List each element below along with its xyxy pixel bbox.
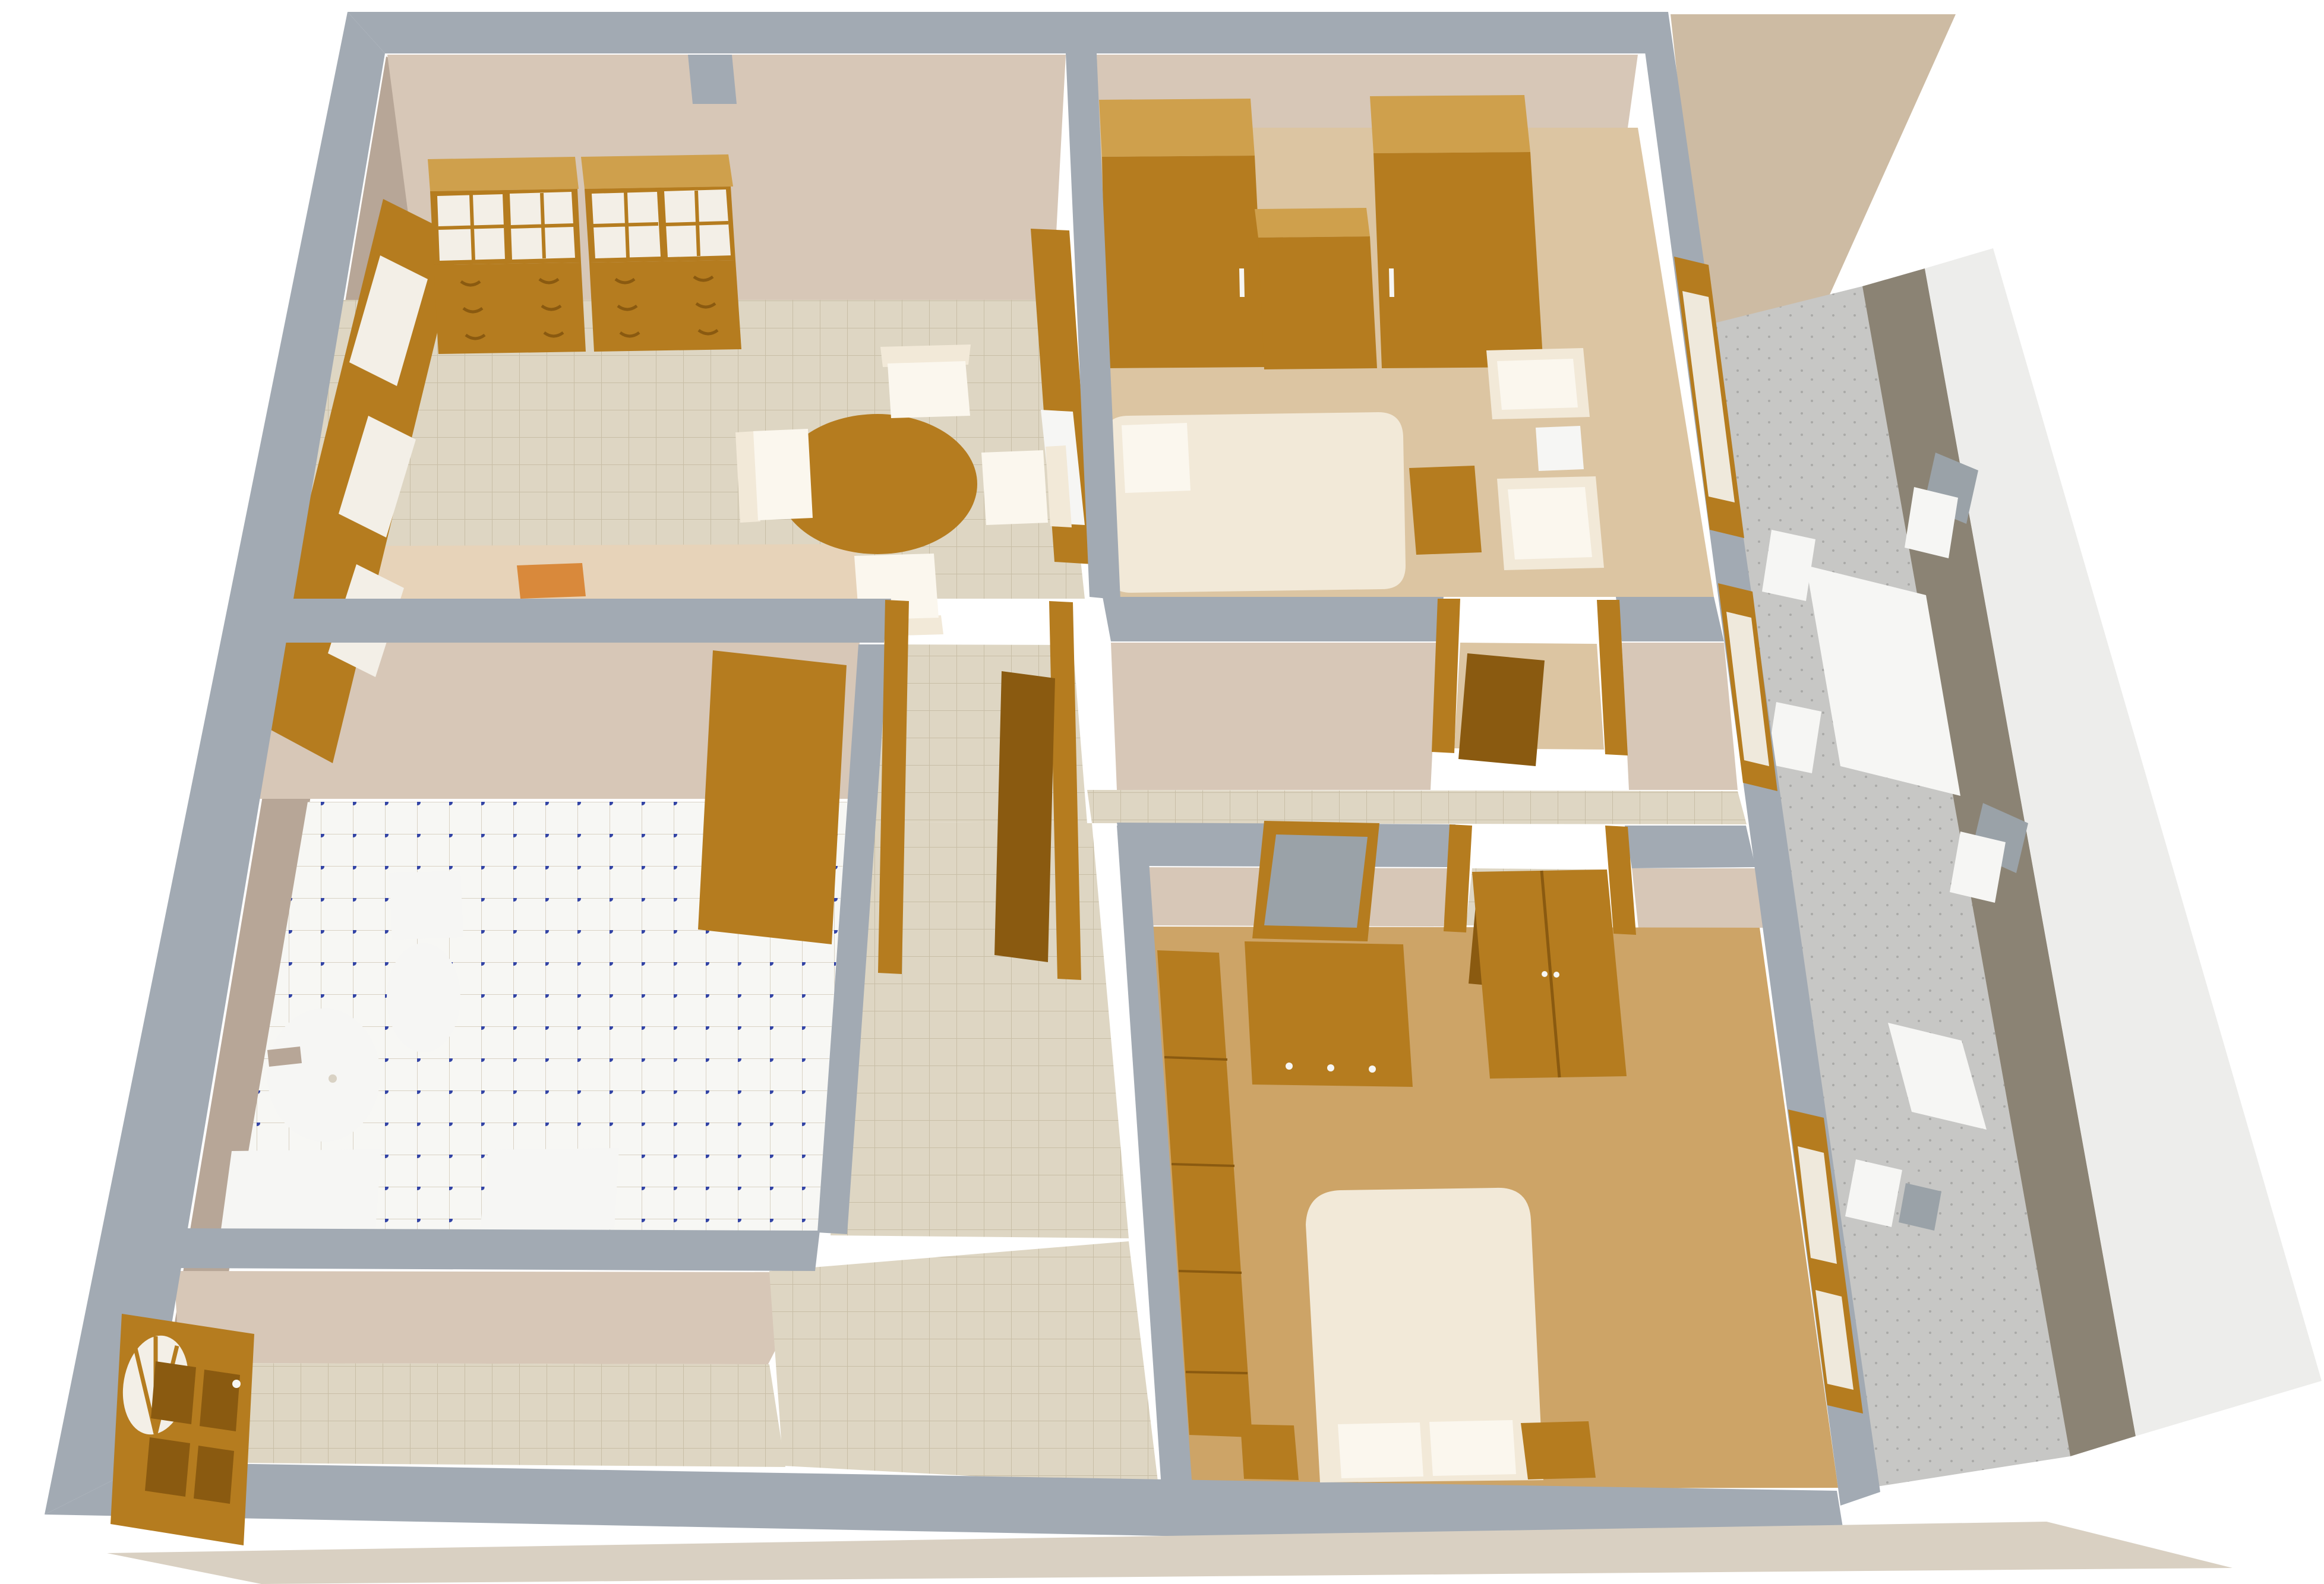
tall-wardrobe-handle-2 bbox=[1553, 972, 1559, 978]
bathroom-south-wall bbox=[171, 1228, 820, 1271]
dining-south-wall bbox=[230, 599, 891, 643]
bath-counter bbox=[221, 1149, 381, 1231]
bedroom2-north-wall-face-right bbox=[1632, 868, 1766, 929]
bedroom1-south-wall-left bbox=[1103, 597, 1444, 641]
corridor-wall-face-left bbox=[1111, 643, 1438, 790]
double-bed-pillow-left bbox=[1338, 1422, 1423, 1478]
china-cabinet-right-drawers bbox=[589, 260, 741, 352]
dresser-handle-3 bbox=[1369, 1066, 1376, 1073]
washing-machine bbox=[480, 1148, 619, 1231]
toilet-tank bbox=[389, 871, 463, 940]
entry-door-panel-1 bbox=[151, 1361, 196, 1424]
wardrobe-left-top bbox=[1099, 99, 1255, 157]
entry-hall-floor-east bbox=[769, 1241, 1158, 1486]
wardrobe-left-handle bbox=[1239, 268, 1245, 297]
floorplan-page bbox=[0, 0, 2324, 1584]
entry-door-panel-2 bbox=[200, 1370, 240, 1431]
washbasin-drain bbox=[329, 1074, 337, 1083]
footstool bbox=[1536, 426, 1584, 471]
balcony-white-chair-1 bbox=[1762, 530, 1815, 601]
dresser-handle-2 bbox=[1327, 1064, 1334, 1071]
china-cabinet-right-top bbox=[581, 154, 733, 189]
balcony-gray-chair-back-3 bbox=[1899, 1183, 1941, 1231]
wardrobe-right-front bbox=[1373, 152, 1543, 368]
toilet-bowl bbox=[387, 943, 460, 1052]
entry-hall-wall-face bbox=[174, 1271, 815, 1364]
nightstand-right bbox=[1521, 1421, 1596, 1479]
dining-open-door-leaf bbox=[994, 671, 1055, 962]
tall-wardrobe-handle-1 bbox=[1542, 971, 1548, 977]
bathroom-open-door-leaf bbox=[698, 650, 847, 944]
entry-door-panel-3 bbox=[145, 1437, 190, 1497]
north-exterior-wall bbox=[348, 12, 1663, 53]
corridor-north-south-floor bbox=[831, 822, 1129, 1238]
entry-door-panel-4 bbox=[194, 1446, 234, 1504]
armchair-south-cushion bbox=[1508, 487, 1592, 559]
bedroom1-side-table bbox=[1409, 466, 1482, 555]
bedroom1-south-wall-right bbox=[1616, 597, 1724, 641]
mirror-glass bbox=[1264, 834, 1368, 928]
dining-floor-mat bbox=[517, 563, 586, 599]
single-bed-pillow bbox=[1122, 423, 1191, 493]
dresser-handle-1 bbox=[1286, 1063, 1293, 1070]
low-chest-front bbox=[1258, 236, 1377, 369]
wardrobe-left-front bbox=[1102, 156, 1265, 368]
dining-chair-north-seat bbox=[888, 361, 970, 418]
washbasin bbox=[267, 1008, 380, 1142]
north-wall-stub bbox=[688, 55, 737, 104]
bedroom1-open-door-leaf bbox=[1458, 653, 1545, 766]
armchair-north-cushion bbox=[1497, 359, 1578, 410]
balcony-white-chair-3 bbox=[1905, 487, 1958, 558]
bedroom2-north-wall-right bbox=[1625, 826, 1755, 868]
wardrobe-right-handle bbox=[1389, 268, 1394, 297]
washbasin-faucet bbox=[267, 1046, 302, 1067]
dining-chair-east-seat bbox=[981, 450, 1048, 525]
entry-door-group bbox=[110, 1314, 254, 1545]
china-cabinet-left-top bbox=[428, 157, 579, 191]
nightstand-left bbox=[1240, 1424, 1299, 1480]
low-chest-top bbox=[1255, 208, 1370, 238]
dining-chair-west-seat bbox=[753, 429, 813, 520]
corridor-wall-face-right bbox=[1622, 643, 1738, 790]
double-bed-pillow-right bbox=[1429, 1420, 1516, 1476]
corridor-east-west-floor bbox=[1087, 790, 1747, 824]
floorplan-render bbox=[0, 0, 2324, 1584]
wardrobe-right-top bbox=[1370, 95, 1530, 153]
china-cabinet-left-drawers bbox=[434, 263, 586, 354]
entry-door-handle bbox=[232, 1380, 241, 1388]
